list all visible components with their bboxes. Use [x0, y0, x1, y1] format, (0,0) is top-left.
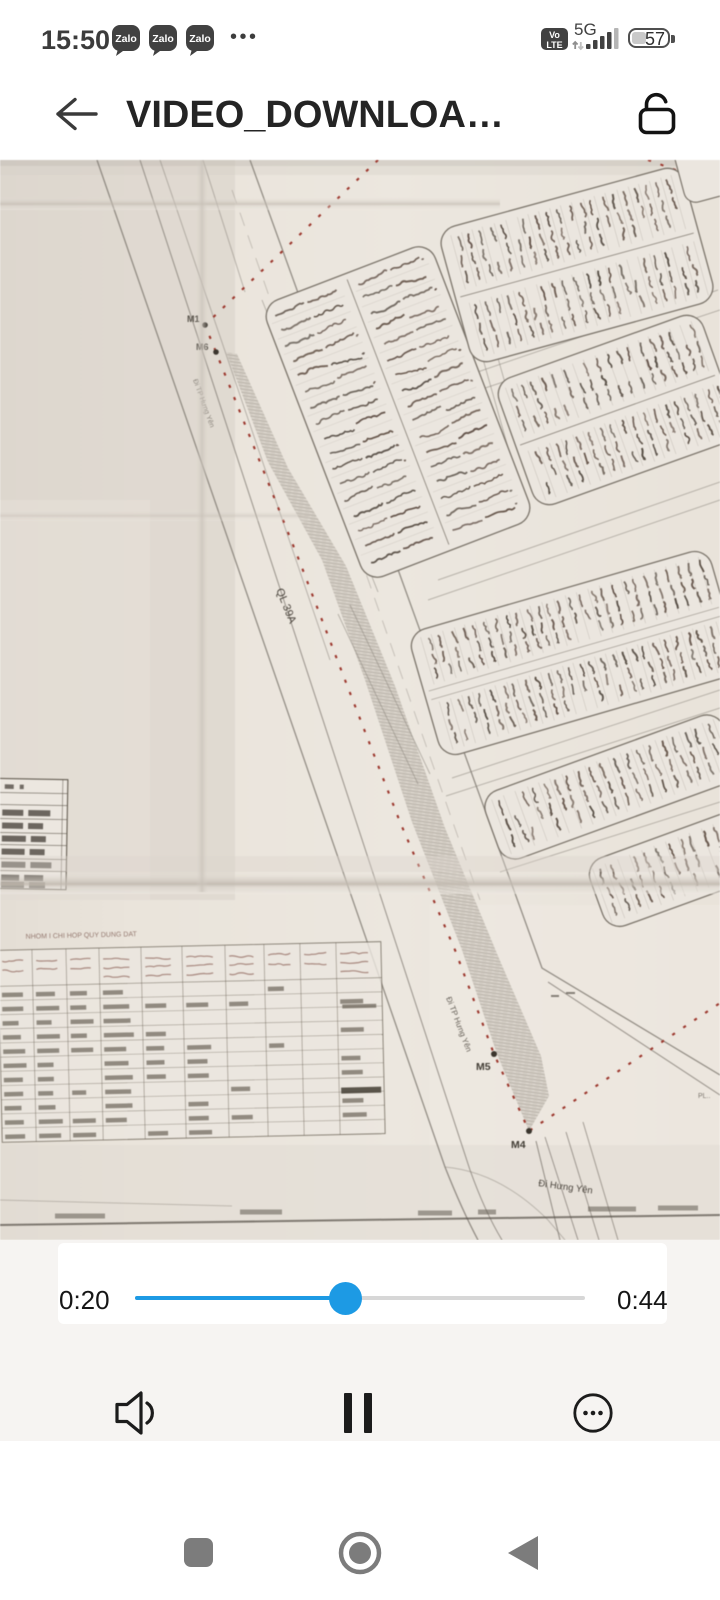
svg-text:M5: M5	[476, 1061, 491, 1073]
svg-text:Zalo: Zalo	[115, 33, 137, 45]
svg-text:Zalo: Zalo	[189, 33, 211, 45]
svg-text:PL..: PL..	[698, 1093, 711, 1100]
svg-text:M4: M4	[511, 1139, 526, 1151]
svg-text:Zalo: Zalo	[152, 33, 174, 45]
